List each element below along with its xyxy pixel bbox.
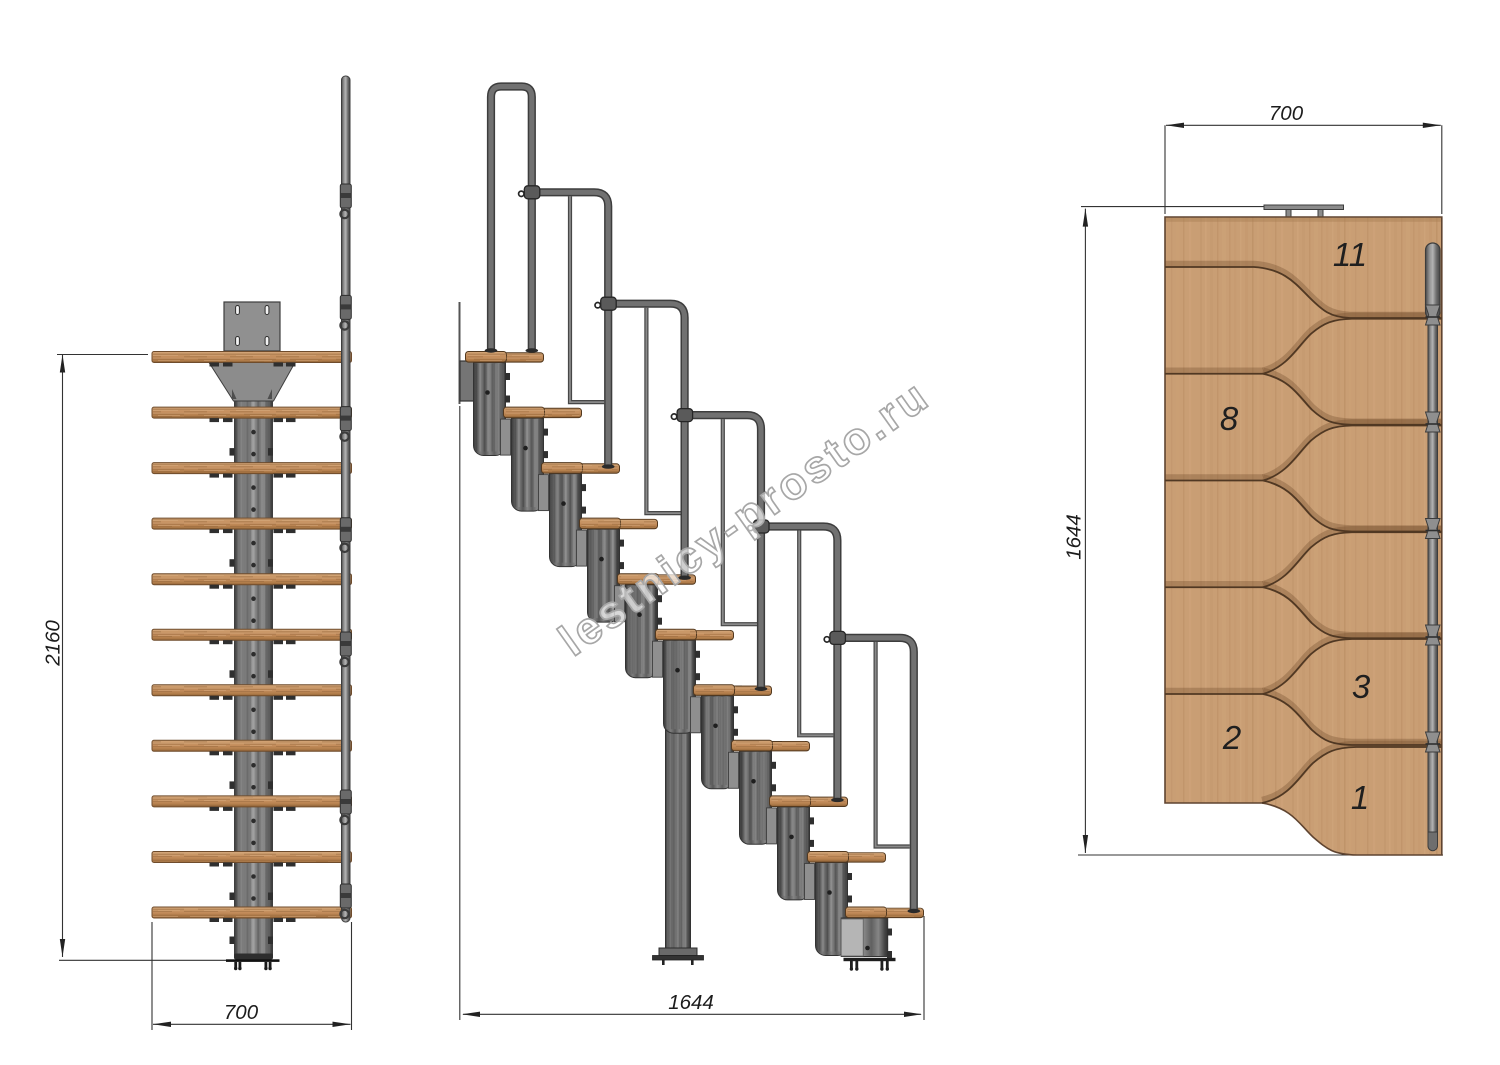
svg-text:700: 700 bbox=[224, 1001, 259, 1024]
svg-text:11: 11 bbox=[1333, 236, 1367, 273]
svg-text:1644: 1644 bbox=[668, 991, 714, 1014]
svg-text:2160: 2160 bbox=[42, 620, 65, 667]
svg-text:8: 8 bbox=[1220, 400, 1239, 437]
svg-text:1644: 1644 bbox=[1063, 514, 1086, 560]
svg-text:1: 1 bbox=[1351, 779, 1369, 816]
svg-text:700: 700 bbox=[1269, 102, 1304, 125]
svg-text:3: 3 bbox=[1352, 668, 1371, 705]
svg-text:2: 2 bbox=[1222, 719, 1241, 756]
